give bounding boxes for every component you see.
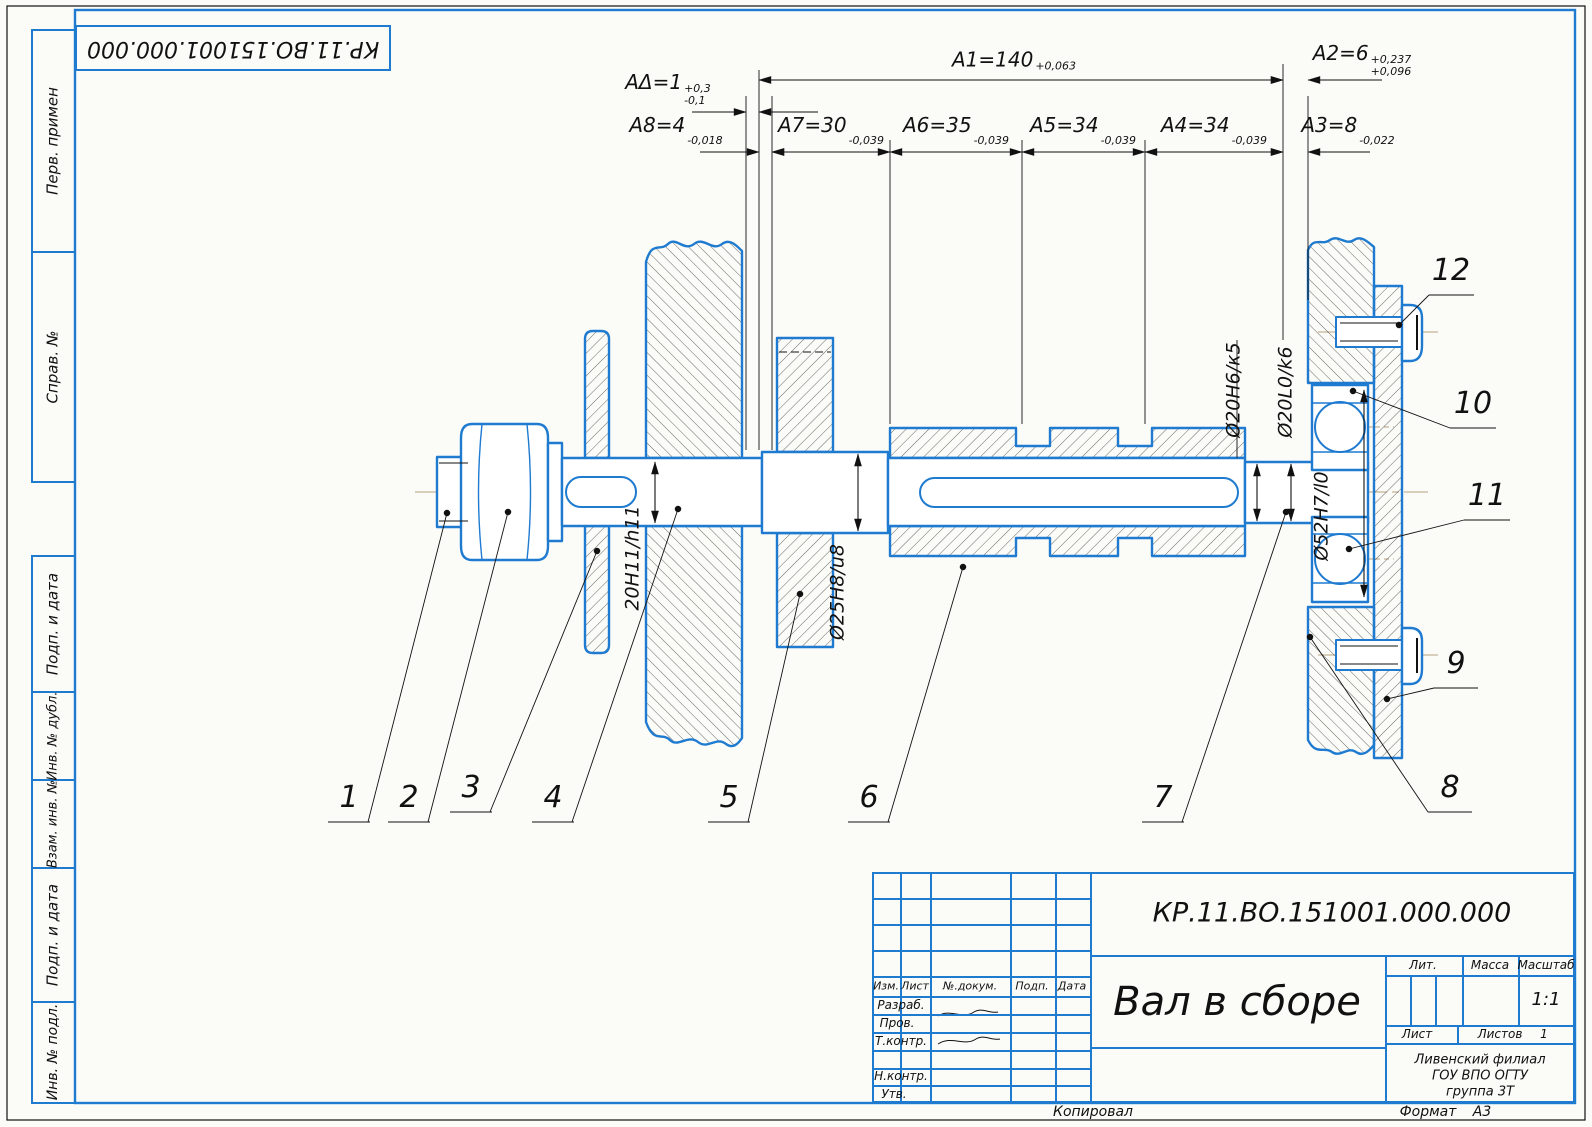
callout-10: 10 xyxy=(1454,389,1492,419)
massa-label: Масса xyxy=(1471,959,1509,971)
dim-a4-sub: -0,039 xyxy=(1232,135,1267,147)
margin-label-podp-data-2: Подп. и дата xyxy=(46,884,61,986)
dim-a7-base: A7=30 xyxy=(778,113,847,137)
hub-lower-section xyxy=(777,533,833,647)
dim-a2: A2=6+0,237+0,096 xyxy=(1313,43,1412,77)
cap-screw-bottom-shank xyxy=(1336,640,1402,670)
callout-1: 1 xyxy=(339,783,358,813)
listov-value: 1 xyxy=(1540,1028,1548,1040)
titleblock-doc-number: КР.11.ВО.151001.000.000 xyxy=(1153,900,1512,927)
scale-value: 1:1 xyxy=(1532,991,1561,1009)
fit-left-seat: 20Н11/h11 xyxy=(624,505,643,610)
flat-washer xyxy=(548,443,562,541)
cap-screw-top-shank xyxy=(1336,317,1402,347)
dim-a5-sub: -0,039 xyxy=(1101,135,1136,147)
title-block: КР.11.ВО.151001.000.000 Вал в сборе Изм.… xyxy=(872,872,1575,1103)
dim-a8-base: A8=4 xyxy=(629,113,685,137)
dim-a3-base: A3=8 xyxy=(1301,113,1357,137)
callout-4: 4 xyxy=(543,783,562,813)
margin-label-podp-data-1: Подп. и дата xyxy=(46,573,61,675)
dim-a8-sub: -0,018 xyxy=(687,135,722,147)
dim-a1-base: A1=140 xyxy=(952,48,1033,72)
dim-a-delta-sup: +0,3 xyxy=(684,83,711,95)
dim-a8: A8=4-0,018 xyxy=(629,115,722,147)
fit-right-seat: Ø20Н6/к5 xyxy=(1225,342,1244,437)
margin-label-perv-primen: Перв. примен xyxy=(46,87,61,195)
list-label: Лист xyxy=(1402,1028,1432,1040)
callout-5: 5 xyxy=(719,783,738,813)
fit-hub-seat: Ø25Н8/u8 xyxy=(829,544,848,640)
lock-washer-upper xyxy=(585,331,609,458)
housing-lower-section xyxy=(1308,607,1374,754)
housing-upper-section xyxy=(1308,238,1374,383)
dim-a6: A6=35-0,039 xyxy=(903,115,1009,147)
corner-stamp: КР.11.ВО.151001.000.000 xyxy=(75,25,391,71)
cap-screw-top-head xyxy=(1402,305,1422,361)
shaft-d25-seat xyxy=(762,452,888,533)
org-line2: ГОУ ВПО ОГТУ xyxy=(1432,1070,1528,1083)
row-razrab: Разраб. xyxy=(877,999,924,1011)
row-prov: Пров. xyxy=(880,1017,915,1029)
sleeve-lower-section xyxy=(890,526,1245,556)
format-value: А3 xyxy=(1473,1105,1491,1119)
col-podp: Подп. xyxy=(1015,981,1048,992)
col-doc: №.докум. xyxy=(943,981,997,992)
dim-a7: A7=30-0,039 xyxy=(778,115,884,147)
corner-stamp-number: КР.11.ВО.151001.000.000 xyxy=(87,37,379,59)
dim-a4: A4=34-0,039 xyxy=(1161,115,1267,147)
listov-label: Листов xyxy=(1478,1028,1523,1040)
bearing-cap xyxy=(1374,286,1402,758)
row-tkontr: Т.контр. xyxy=(875,1035,927,1047)
dim-a4-base: A4=34 xyxy=(1161,113,1230,137)
dim-a2-base: A2=6 xyxy=(1313,41,1369,65)
dim-a-delta: AΔ=1+0,3-0,1 xyxy=(625,72,711,106)
dim-a1-sup: +0,063 xyxy=(1035,61,1076,73)
margin-label-sprav-no: Справ. № xyxy=(46,331,61,404)
col-izm: Изм. xyxy=(873,981,899,992)
dim-a7-sub: -0,039 xyxy=(849,135,884,147)
callout-8: 8 xyxy=(1440,773,1459,803)
dim-a5: A5=34-0,039 xyxy=(1030,115,1136,147)
col-list: Лист xyxy=(901,981,929,992)
titleblock-title: Вал в сборе xyxy=(1113,982,1361,1022)
callout-6: 6 xyxy=(859,783,878,813)
row-utv: Утв. xyxy=(881,1088,906,1100)
hex-nut xyxy=(461,424,548,560)
callout-12: 12 xyxy=(1432,256,1470,286)
sprocket-upper-section xyxy=(646,242,742,458)
dim-a3-sub: -0,022 xyxy=(1359,135,1394,147)
org-line1: Ливенский филиал xyxy=(1414,1054,1545,1067)
keyway-left xyxy=(566,477,636,507)
org-line3: группа 3Т xyxy=(1446,1086,1514,1099)
dim-a6-base: A6=35 xyxy=(903,113,972,137)
callout-11: 11 xyxy=(1468,481,1506,511)
dim-a1: A1=140+0,063 xyxy=(952,50,1076,73)
dim-a2-sub: +0,096 xyxy=(1371,66,1412,78)
row-nkontr: Н.контр. xyxy=(874,1070,928,1082)
hub-upper-section xyxy=(777,338,833,452)
dim-a6-sub: -0,039 xyxy=(974,135,1009,147)
cap-screw-bottom-head xyxy=(1402,628,1422,684)
sleeve-upper-section xyxy=(890,428,1245,458)
dim-a5-base: A5=34 xyxy=(1030,113,1099,137)
callout-3: 3 xyxy=(461,773,480,803)
drawing-sheet: КР.11.ВО.151001.000.000 Перв. примен Спр… xyxy=(0,0,1592,1127)
margin-label-vzam-inv: Взам. инв. № xyxy=(47,780,60,868)
lit-label: Лит. xyxy=(1409,959,1437,971)
callout-2: 2 xyxy=(399,783,418,813)
col-data: Дата xyxy=(1058,981,1086,992)
fit-bearing-seat: Ø20L0/k6 xyxy=(1277,346,1296,437)
copied-label: Копировал xyxy=(1053,1105,1133,1119)
format-label: Формат xyxy=(1400,1105,1457,1119)
bearing-ball-upper xyxy=(1315,402,1365,452)
masshtab-label: Масштаб xyxy=(1517,959,1574,971)
sprocket-lower-section xyxy=(646,526,742,746)
dim-a2-sup: +0,237 xyxy=(1371,54,1412,66)
dim-a-delta-sub: -0,1 xyxy=(684,95,711,107)
callout-7: 7 xyxy=(1153,783,1172,813)
fit-bearing-housing: Ø52Н7/l0 xyxy=(1313,471,1332,560)
margin-label-inv-podl: Инв. № подл. xyxy=(46,1004,60,1101)
dim-a3: A3=8-0,022 xyxy=(1301,115,1394,147)
lock-washer-lower xyxy=(585,526,609,653)
dim-a-delta-base: AΔ=1 xyxy=(625,70,682,94)
keyway-long xyxy=(920,478,1238,507)
margin-label-inv-dubl: Инв. № дубл. xyxy=(47,692,60,781)
callout-9: 9 xyxy=(1446,649,1465,679)
